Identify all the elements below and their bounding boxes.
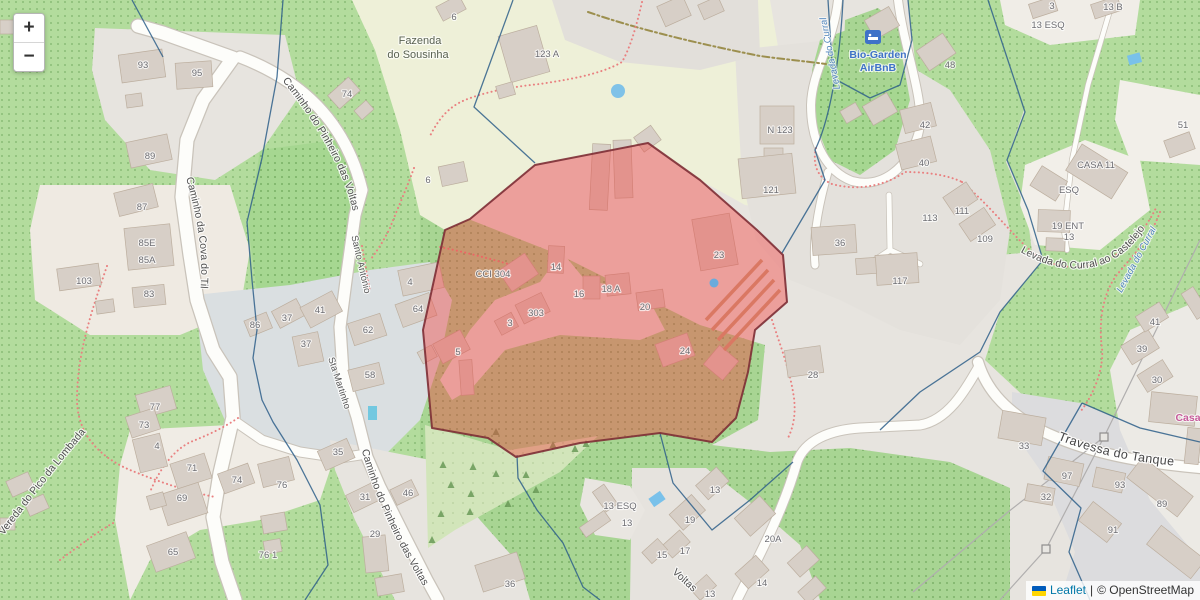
house-number-label: 48 <box>945 60 956 71</box>
house-number-label: 24 <box>680 346 691 357</box>
house-number-label: ESQ <box>1059 185 1079 196</box>
pool <box>368 406 377 420</box>
house-number-label: 16 <box>574 289 585 300</box>
house-number-label: 18 A <box>601 284 621 295</box>
house-number-label: 13 <box>710 485 721 496</box>
house-number-label: CCI 304 <box>476 269 511 280</box>
house-number-label: 4 <box>407 277 412 288</box>
house-number-label: 74 <box>232 475 243 486</box>
zoom-control: + − <box>13 13 45 72</box>
house-number-label: 37 <box>282 313 293 324</box>
house-number-label: 91 <box>1108 525 1119 536</box>
house-number-label: 58 <box>365 370 376 381</box>
house-number-label: 3 <box>507 318 512 329</box>
ukraine-flag-icon <box>1032 586 1046 596</box>
house-number-label: 39 <box>1137 344 1148 355</box>
house-number-label: 86 <box>250 320 261 331</box>
place-label: Casa <box>1175 412 1200 424</box>
osm-link[interactable]: © OpenStreetMap <box>1097 581 1194 600</box>
house-number-label: 4 <box>154 441 159 452</box>
house-number-label: 113 <box>922 213 937 224</box>
house-number-label: 28 <box>808 370 819 381</box>
house-number-label: 13 <box>1064 232 1075 243</box>
house-number-label: 46 <box>403 488 414 499</box>
house-number-label: 65 <box>168 547 179 558</box>
zoom-in-button[interactable]: + <box>14 14 44 43</box>
house-number-label: 89 <box>1157 499 1168 510</box>
house-number-label: 77 <box>150 402 161 413</box>
house-number-label: 93 <box>138 60 149 71</box>
house-number-label: 93 <box>1115 480 1126 491</box>
house-number-label: 13 ESQ <box>1031 20 1064 31</box>
house-number-label: 31 <box>360 492 371 503</box>
house-number-label: 19 <box>685 515 696 526</box>
house-number-label: 37 <box>301 339 312 350</box>
house-number-label: 36 <box>505 579 516 590</box>
attribution-separator: | <box>1090 581 1093 600</box>
house-number-label: 51 <box>1178 120 1189 131</box>
house-number-label: 13 <box>622 518 633 529</box>
house-number-label: 117 <box>892 276 907 287</box>
place-label: do Sousinha <box>387 49 449 61</box>
lodging-icon <box>865 30 881 44</box>
house-number-label: CASA 11 <box>1077 160 1115 171</box>
house-number-label: 40 <box>919 158 930 169</box>
house-number-label: 35 <box>333 447 344 458</box>
house-number-label: 41 <box>1150 317 1161 328</box>
house-number-label: 69 <box>177 493 188 504</box>
house-number-label: 13 ESQ <box>603 501 636 512</box>
pond-small <box>710 279 719 288</box>
house-number-label: 15 <box>657 550 668 561</box>
house-number-label: 5 <box>455 347 460 358</box>
house-number-label: 20 <box>640 302 651 313</box>
house-number-label: 89 <box>145 151 156 162</box>
house-number-label: 30 <box>1152 375 1163 386</box>
house-number-label: 111 <box>955 206 969 217</box>
house-number-label: 29 <box>370 529 381 540</box>
house-number-label: 41 <box>315 305 326 316</box>
house-number-label: 3 <box>1049 1 1054 12</box>
house-number-label: 64 <box>413 304 424 315</box>
house-number-label: 71 <box>187 463 198 474</box>
house-number-label: 17 <box>680 546 691 557</box>
house-number-label: 14 <box>551 262 562 273</box>
house-number-label: 20A <box>765 534 783 545</box>
house-number-label: 33 <box>1019 441 1030 452</box>
house-number-label: 6 <box>451 12 456 23</box>
house-number-label: 76 1 <box>259 550 278 561</box>
house-number-label: 42 <box>920 120 931 131</box>
place-label: Fazenda <box>399 35 443 47</box>
house-number-label: 303 <box>528 308 544 319</box>
house-number-label: 103 <box>76 276 92 287</box>
house-number-label: 6 <box>425 175 430 186</box>
house-number-label: 85E <box>139 238 156 249</box>
house-number-label: 14 <box>757 578 768 589</box>
house-number-label: 87 <box>137 202 148 213</box>
house-number-label: 76 <box>277 480 288 491</box>
house-number-label: 36 <box>835 238 846 249</box>
house-number-label: 95 <box>192 68 203 79</box>
attribution-bar: Leaflet | © OpenStreetMap <box>1026 581 1200 600</box>
leaflet-link[interactable]: Leaflet <box>1050 581 1086 600</box>
house-number-label: 19 ENT <box>1052 221 1084 232</box>
house-number-label: 32 <box>1041 492 1052 503</box>
house-number-label: 121 <box>763 185 779 196</box>
house-number-label: 13 B <box>1103 2 1123 13</box>
place-label: Bio-Garden <box>849 49 906 61</box>
house-number-label: N 123 <box>767 125 792 136</box>
house-number-label: 73 <box>139 420 150 431</box>
house-number-label: 23 <box>714 250 725 261</box>
pond <box>611 84 625 98</box>
house-number-label: 83 <box>144 289 155 300</box>
map-canvas[interactable]: Caminho do Pinheiro das VoltasCaminho da… <box>0 0 1200 600</box>
house-number-label: 123 A <box>535 49 560 60</box>
house-number-label: 109 <box>977 234 993 245</box>
zoom-out-button[interactable]: − <box>14 43 44 71</box>
place-label: AirBnB <box>860 62 897 74</box>
house-number-label: 13 <box>705 589 716 600</box>
house-number-label: 62 <box>363 325 374 336</box>
house-number-label: 74 <box>342 89 353 100</box>
house-number-label: 85A <box>139 255 157 266</box>
house-number-label: 97 <box>1062 471 1073 482</box>
leaflet-map[interactable]: Caminho do Pinheiro das VoltasCaminho da… <box>0 0 1200 600</box>
